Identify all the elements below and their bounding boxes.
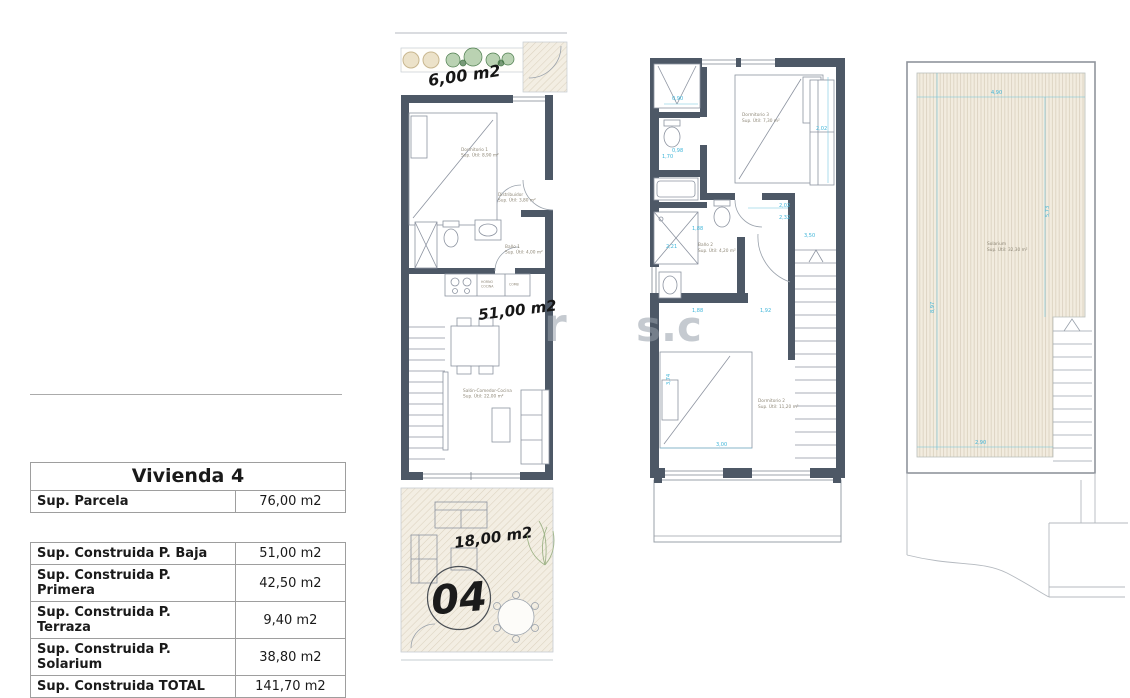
room-label: Sup. Útil: 3,80 m² [498,197,536,204]
room-label: Sup. Útil: 8,90 m² [461,152,499,159]
coffee-table [492,408,510,442]
room-label: Dormitorio 1 [461,147,488,153]
watermark-fragment: r [544,298,567,352]
dim-label: 5,73 [1045,206,1051,217]
room-label: Dormitorio 3 [742,112,769,118]
dim-label: 3,50 [804,233,815,239]
toilet-icon [714,200,730,227]
table-cell-label: Sup. Construida TOTAL [31,676,236,698]
bed [660,352,752,448]
dim-label: 8,97 [930,302,936,313]
watermark-fragment: s.c [636,302,702,351]
terrace: 04 18,00 m2 [401,488,554,660]
table-row: Sup. Construida TOTAL 141,70 m2 [31,676,346,698]
dim-label: 2,02 [816,126,827,132]
sink-icon [659,272,681,298]
room-label: Solarium [987,241,1006,247]
table-row: Sup. Construida P. Terraza 9,40 m2 [31,602,346,639]
entry-porch [523,42,567,92]
appliance-label: HORNO [481,280,494,284]
room-label: Baño 2 [698,242,713,248]
table-cell-label: Sup. Construida P. Solarium [31,639,236,676]
table-cell-label: Sup. Parcela [31,491,236,513]
table-row: Sup. Construida P. Solarium 38,80 m2 [31,639,346,676]
dim-label: 0,90 [672,96,683,102]
unit-number: 04 [429,574,488,625]
table-cell-value: 141,70 m2 [235,676,345,698]
room-label: Distribuidor [498,192,523,198]
sofa [521,390,549,464]
divider-line [30,394,342,395]
floorplan-sheet: Vivienda 4 Sup. Parcela 76,00 m2 Sup. Co… [0,0,1130,665]
dim-label: 1,88 [692,226,703,232]
room-label: Sup. Útil: 11,20 m² [758,403,799,410]
dim-label: 2,90 [975,440,986,446]
furniture [409,113,549,464]
room-label: Sup. Útil: 4,20 m² [698,247,736,254]
table-cell-value: 38,80 m2 [235,639,345,676]
stairs [795,250,836,458]
room-label: Sup. Útil: 32,30 m² [987,246,1028,253]
table-cell-value: 42,50 m2 [235,565,345,602]
room-label: Sup. Útil: 4,00 m² [505,249,543,256]
shower-icon [654,212,698,264]
room-label: Salón-Comedor-Cocina [463,387,512,394]
dim-label: 4,90 [991,90,1002,96]
room-label: Baño 1 [505,244,520,250]
dim-label: 1,70 [662,154,673,160]
sink-icon [475,220,501,240]
room-label: Sup. Útil: 22,00 m² [463,393,504,400]
table-cell-label: Sup. Construida P. Primera [31,565,236,602]
terrace-outline [654,478,841,542]
table-cell-label: Sup. Construida P. Terraza [31,602,236,639]
stairs [409,327,448,459]
dim-label: 3,74 [666,374,672,385]
dim-label: 2,32 [779,215,790,221]
table-cell-value: 51,00 m2 [235,543,345,565]
appliance-label: COMB [509,283,519,287]
table-cell-value: 76,00 m2 [235,491,345,513]
room-label: Dormitorio 2 [758,398,785,404]
page-title: Vivienda 4 [31,463,346,491]
table-row: Sup. Construida P. Primera 42,50 m2 [31,565,346,602]
dim-label: 1,92 [760,308,771,314]
toilet-icon [443,221,459,247]
summary-table-built: Sup. Construida P. Baja 51,00 m2 Sup. Co… [30,542,346,698]
lower-roof-outline [907,473,1128,597]
table-cell-label: Sup. Construida P. Baja [31,543,236,565]
shower-icon [654,178,698,200]
toilet-icon [664,120,680,147]
surface-summary: Vivienda 4 Sup. Parcela 76,00 m2 Sup. Co… [30,462,346,698]
solarium-plan: 4,90 5,73 8,97 2,90 Solarium Sup. Útil: … [895,55,1130,660]
dim-label: 0,98 [672,148,683,154]
dim-label: 2,21 [666,244,677,250]
wardrobe [415,222,437,268]
table-cell-value: 9,40 m2 [235,602,345,639]
wardrobe [810,80,834,185]
room-label: Sup. Útil: 7,30 m² [742,117,780,124]
dining-table [451,318,499,374]
summary-table-top: Vivienda 4 Sup. Parcela 76,00 m2 [30,462,346,513]
bed [409,113,497,225]
dim-label: 3,00 [716,442,727,448]
appliance-label: COCINA [481,285,494,289]
dim-label: 2,02 [779,203,790,209]
table-row: Sup. Construida P. Baja 51,00 m2 [31,543,346,565]
